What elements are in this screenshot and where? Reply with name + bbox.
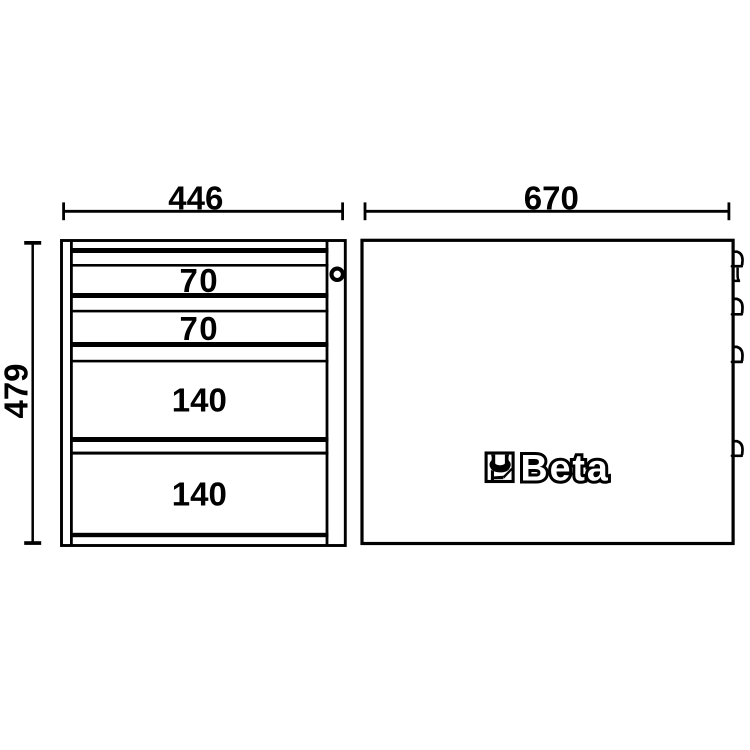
- svg-text:140: 140: [172, 382, 227, 419]
- svg-text:140: 140: [172, 475, 227, 512]
- svg-text:70: 70: [179, 310, 219, 347]
- svg-text:446: 446: [168, 179, 223, 216]
- svg-text:479: 479: [0, 363, 35, 418]
- svg-text:70: 70: [179, 262, 219, 299]
- svg-text:670: 670: [524, 179, 579, 216]
- svg-text:Beta: Beta: [521, 446, 610, 488]
